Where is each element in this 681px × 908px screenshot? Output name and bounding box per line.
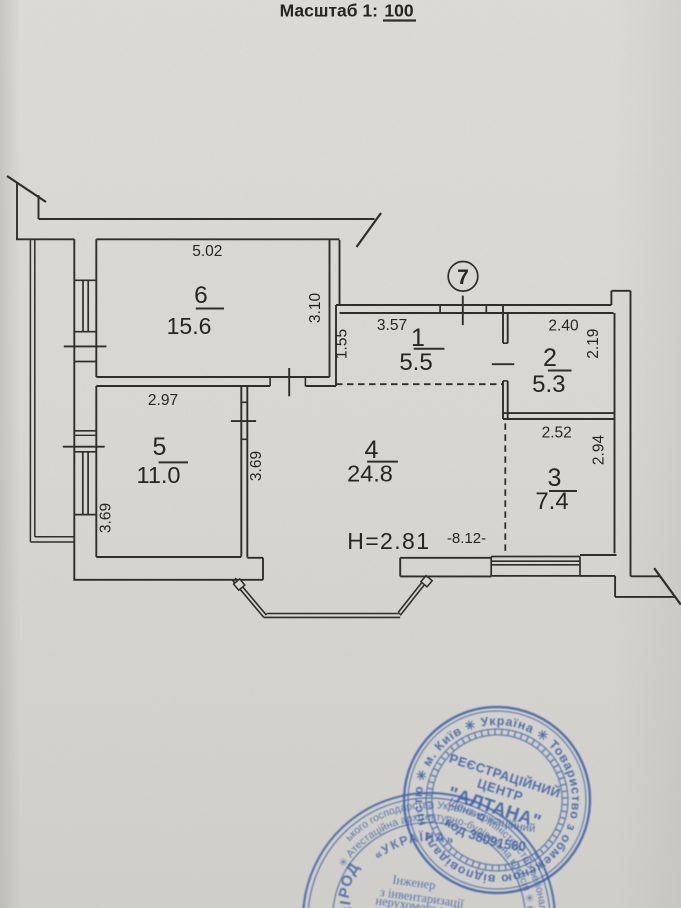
svg-text:1.55: 1.55: [334, 329, 351, 359]
svg-text:Н=2.81: Н=2.81: [347, 528, 430, 554]
svg-text:3.57: 3.57: [377, 317, 407, 334]
svg-text:3.69: 3.69: [98, 503, 115, 533]
svg-text:100: 100: [384, 1, 413, 21]
svg-text:2.19: 2.19: [585, 329, 602, 359]
svg-text:2.40: 2.40: [548, 318, 579, 335]
svg-text:2.94: 2.94: [590, 435, 607, 466]
svg-text:2.97: 2.97: [148, 392, 178, 409]
svg-text:7: 7: [457, 266, 469, 289]
svg-text:5.5: 5.5: [399, 349, 432, 376]
svg-text:Масштаб 1:: Масштаб 1:: [280, 1, 378, 21]
svg-text:3.69: 3.69: [248, 451, 265, 481]
svg-text:5: 5: [153, 433, 167, 461]
svg-text:6: 6: [194, 282, 208, 309]
svg-text:24.8: 24.8: [347, 461, 393, 487]
svg-text:2: 2: [543, 344, 557, 372]
svg-text:-8.12-: -8.12-: [447, 530, 486, 547]
svg-text:7.4: 7.4: [535, 488, 568, 515]
svg-text:5.3: 5.3: [532, 371, 565, 398]
svg-text:3.10: 3.10: [307, 293, 324, 324]
svg-text:15.6: 15.6: [167, 313, 212, 339]
svg-text:11.0: 11.0: [137, 462, 181, 488]
svg-text:2.52: 2.52: [542, 425, 572, 442]
svg-text:5.02: 5.02: [192, 243, 222, 260]
